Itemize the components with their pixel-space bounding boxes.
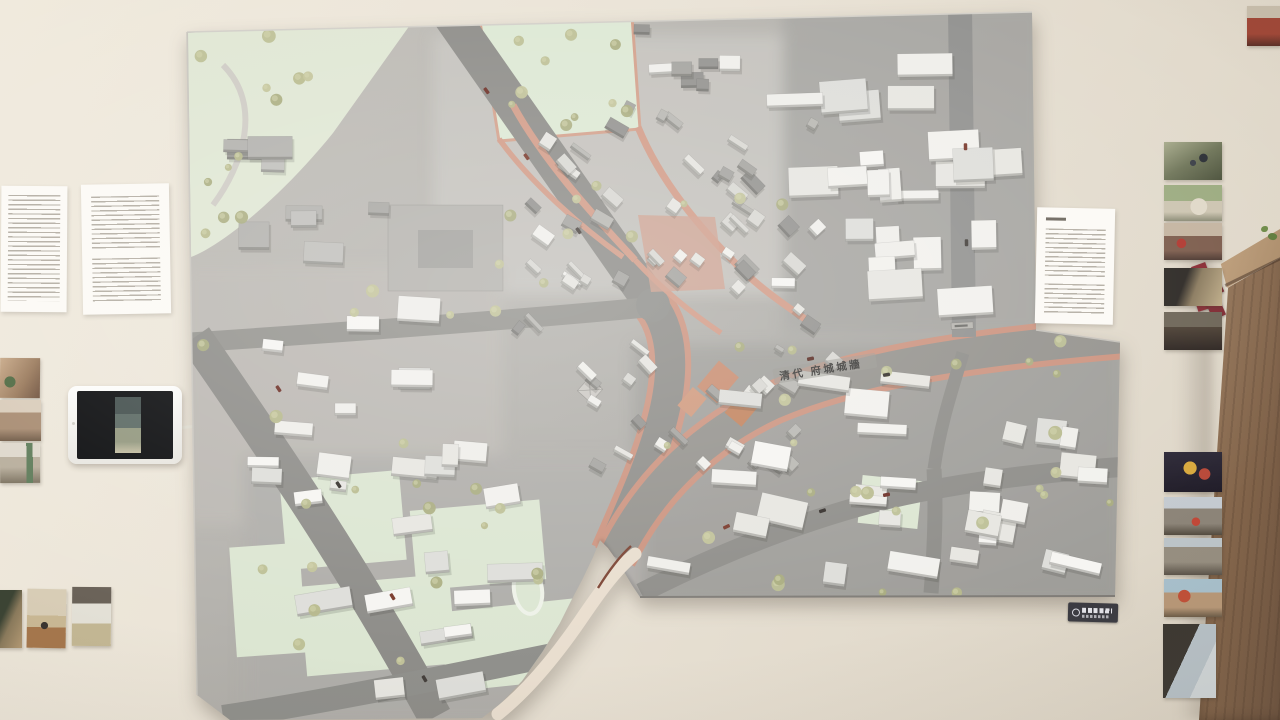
plaque-subtext-row	[1082, 615, 1109, 618]
building	[857, 423, 909, 440]
building	[845, 218, 875, 244]
building	[827, 166, 869, 192]
exhibit-photo	[1164, 312, 1222, 350]
exhibit-photo	[0, 590, 22, 648]
building	[262, 339, 286, 356]
building	[424, 550, 452, 577]
exhibit-photo	[1163, 624, 1216, 698]
exhibit-photo	[1164, 579, 1222, 617]
building	[699, 58, 720, 72]
building	[696, 79, 711, 95]
building	[634, 24, 652, 37]
exhibit-photo	[1164, 268, 1222, 306]
building	[897, 53, 954, 80]
leaf-decoration	[1261, 226, 1268, 232]
building	[442, 444, 461, 471]
exhibit-photo	[1247, 6, 1280, 46]
panel-text-lines	[1044, 228, 1106, 277]
building	[391, 370, 435, 391]
building	[719, 55, 742, 74]
building	[316, 452, 354, 483]
building	[711, 469, 759, 490]
building	[1059, 426, 1081, 453]
exhibit-photo	[0, 358, 40, 398]
panel-title-line	[1046, 217, 1066, 220]
exhibit-photo	[0, 443, 40, 483]
panel-text-lines	[1044, 283, 1105, 314]
building	[251, 467, 284, 488]
building	[867, 268, 925, 305]
building	[888, 86, 936, 114]
text-panel-right	[1035, 207, 1115, 325]
building	[982, 467, 1004, 491]
building	[867, 169, 892, 200]
building	[971, 220, 998, 253]
wall-mounted-tablet[interactable]	[68, 386, 182, 464]
plaque-text-row	[1082, 607, 1112, 613]
plaque-logo-icon	[1072, 608, 1080, 616]
building	[880, 476, 918, 493]
gallery-wall: 清代 府城城牆	[0, 0, 1280, 720]
building	[454, 589, 493, 609]
exhibit-photo	[0, 400, 41, 441]
building	[397, 296, 443, 327]
building	[239, 222, 271, 253]
building	[767, 92, 826, 111]
car	[965, 239, 969, 246]
exhibit-photo	[26, 589, 66, 649]
exhibit-photo	[1164, 497, 1222, 535]
car	[964, 143, 968, 150]
panel-text-lines	[92, 257, 161, 302]
building	[368, 202, 391, 219]
building	[248, 136, 295, 162]
panel-text-lines	[8, 195, 60, 301]
tablet-camera-dot	[72, 422, 75, 425]
tablet-screen[interactable]	[77, 391, 173, 459]
model-maker-plaque	[1068, 602, 1118, 622]
exhibit-photo	[1164, 452, 1222, 492]
building	[672, 62, 694, 80]
exhibit-photo	[1164, 142, 1222, 180]
city-scale-model: 清代 府城城牆	[183, 5, 1123, 720]
building	[819, 78, 870, 118]
exhibit-photo	[1164, 223, 1222, 260]
building	[771, 278, 796, 292]
exhibit-photo	[72, 587, 112, 646]
building	[1077, 467, 1110, 488]
text-panel-top-left-1	[1, 186, 68, 312]
exhibit-photo	[1164, 185, 1222, 221]
building	[822, 561, 849, 590]
building	[953, 147, 997, 185]
building	[274, 420, 315, 440]
building	[335, 403, 358, 418]
building	[303, 241, 346, 268]
building	[374, 677, 408, 703]
building	[998, 499, 1030, 529]
building	[937, 285, 996, 320]
building	[291, 211, 319, 231]
tablet-video-still	[115, 397, 141, 453]
exhibit-photo	[1164, 538, 1222, 575]
text-panel-top-left-2	[81, 183, 171, 315]
panel-text-lines	[91, 195, 161, 248]
building	[844, 388, 892, 423]
small-street-chip	[951, 322, 973, 330]
tree	[573, 688, 584, 699]
building	[347, 316, 381, 335]
